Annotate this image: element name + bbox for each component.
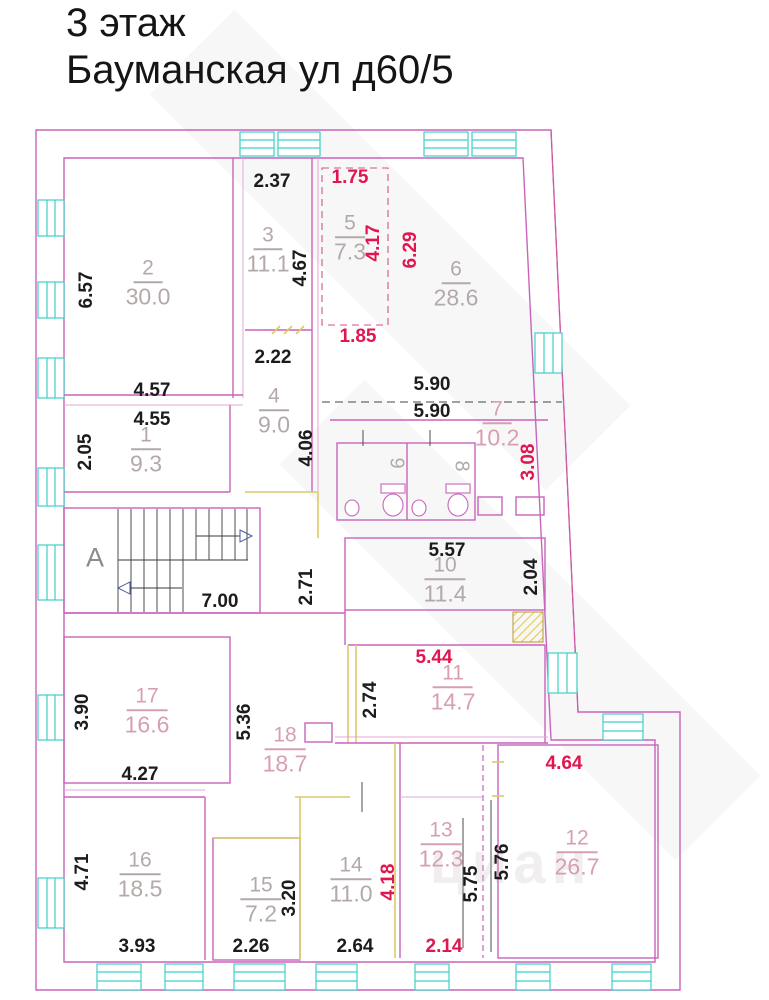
dim-room13-bottom: 2.14 (426, 936, 463, 958)
dim-room12-top: 4.64 (546, 753, 583, 775)
room-12-number: 12 (556, 827, 597, 853)
room-15-area: 7.2 (240, 900, 281, 926)
room-8-label: 8 (450, 460, 473, 471)
dim-room1-top: 4.55 (134, 409, 171, 431)
room-7-number: 7 (482, 398, 512, 424)
room-18-area: 18.7 (263, 750, 308, 776)
room-14-area: 11.0 (329, 880, 372, 906)
dim-room2-left: 6.57 (76, 272, 98, 309)
room-16-label: 16 18.5 (118, 849, 163, 901)
dim-room15-right: 3.20 (279, 880, 301, 917)
room-15-number: 15 (240, 874, 281, 900)
room-6-area: 28.6 (434, 284, 479, 310)
stairwell-letter: А (86, 543, 104, 574)
room-5-number: 5 (335, 212, 365, 238)
toilet-icon (381, 484, 405, 516)
dim-room17-bottom: 4.27 (122, 764, 159, 786)
floor-plan-page: 3 этаж Бауманская ул д60/5 (0, 0, 769, 1000)
dim-room5-right: 4.17 (363, 225, 385, 262)
room-14-number: 14 (330, 854, 371, 880)
room-6-label: 6 28.6 (434, 258, 479, 310)
dim-room3-top: 2.37 (254, 171, 291, 193)
room-9-label: 9 (385, 457, 408, 468)
dim-corridor-right-of-stairs: 2.71 (296, 569, 318, 606)
stair-arrow-down-icon (118, 582, 182, 594)
dim-room10-top: 5.57 (429, 540, 466, 562)
dim-room11-top: 5.44 (416, 647, 453, 669)
room-18-label: 18 18.7 (263, 724, 308, 776)
room-17-number: 17 (126, 685, 167, 711)
room-3-area: 11.1 (246, 250, 289, 276)
room-14-label: 14 11.0 (329, 854, 372, 906)
dim-room14-right: 4.18 (378, 864, 400, 901)
room-16-area: 18.5 (118, 875, 163, 901)
sink-icon (345, 500, 359, 516)
dim-wall-right: 3.08 (518, 444, 540, 481)
toilet-icon (446, 484, 470, 516)
room-2-label: 2 30.0 (126, 257, 171, 309)
room-4-area: 9.0 (258, 411, 290, 437)
room-7-area: 10.2 (475, 424, 520, 450)
room-4-number: 4 (259, 385, 289, 411)
room-13-number: 13 (420, 819, 461, 845)
room-12-label: 12 26.7 (555, 827, 600, 879)
dim-room13-right-outer: 5.76 (492, 844, 514, 881)
room-10-area: 11.4 (423, 580, 466, 606)
stair-arrow-up-icon (196, 530, 252, 542)
dim-corridor-590-lower: 5.90 (414, 401, 451, 423)
dim-corridor-590-upper: 5.90 (414, 374, 451, 396)
dim-room13-right-inner: 5.75 (461, 866, 483, 903)
room-3-number: 3 (253, 224, 283, 250)
dim-room5-bottom: 1.85 (340, 326, 377, 348)
dim-room5-top: 1.75 (332, 167, 369, 189)
room-11-area: 14.7 (431, 688, 476, 714)
dim-room10-right: 2.04 (521, 559, 543, 596)
dim-room15-bottom: 2.26 (233, 936, 270, 958)
dim-room4-top: 2.22 (255, 347, 292, 369)
dim-room11-left: 2.74 (360, 682, 382, 719)
room-12-area: 26.7 (555, 853, 600, 879)
dim-room14-bottom: 2.64 (337, 936, 374, 958)
room-13-label: 13 12.3 (419, 819, 464, 871)
room-18-number: 18 (264, 724, 305, 750)
dim-room2-bottom: 4.57 (134, 380, 171, 402)
dim-corridor18-left: 5.36 (234, 704, 256, 741)
room-4-label: 4 9.0 (258, 385, 290, 437)
dim-room17-left: 3.90 (72, 694, 94, 731)
room-15-label: 15 7.2 (240, 874, 281, 926)
floor-plan-canvas (0, 0, 769, 1000)
room-1-label: 1 9.3 (130, 424, 162, 476)
room-6-number: 6 (441, 258, 471, 284)
dim-room6-left: 6.29 (400, 232, 422, 269)
room-16-number: 16 (119, 849, 160, 875)
dim-room16-left: 4.71 (72, 854, 94, 891)
dim-room16-bottom: 3.93 (119, 936, 156, 958)
room-13-area: 12.3 (419, 845, 464, 871)
room-2-area: 30.0 (126, 283, 171, 309)
room-7-label: 7 10.2 (475, 398, 520, 450)
room-2-number: 2 (133, 257, 163, 283)
room-5-label: 5 7.3 (334, 212, 366, 264)
dim-stair-bottom: 7.00 (202, 591, 239, 613)
dim-room1-left: 2.05 (75, 434, 97, 471)
room-1-area: 9.3 (130, 450, 162, 476)
room-11-label: 11 14.7 (431, 662, 476, 714)
dim-room3-right: 4.67 (290, 250, 312, 287)
sink-icon (412, 500, 426, 516)
room-5-area: 7.3 (334, 238, 366, 264)
dim-room4-right: 4.06 (296, 430, 318, 467)
room-3-label: 3 11.1 (246, 224, 289, 276)
room-17-area: 16.6 (125, 711, 170, 737)
room-17-label: 17 16.6 (125, 685, 170, 737)
